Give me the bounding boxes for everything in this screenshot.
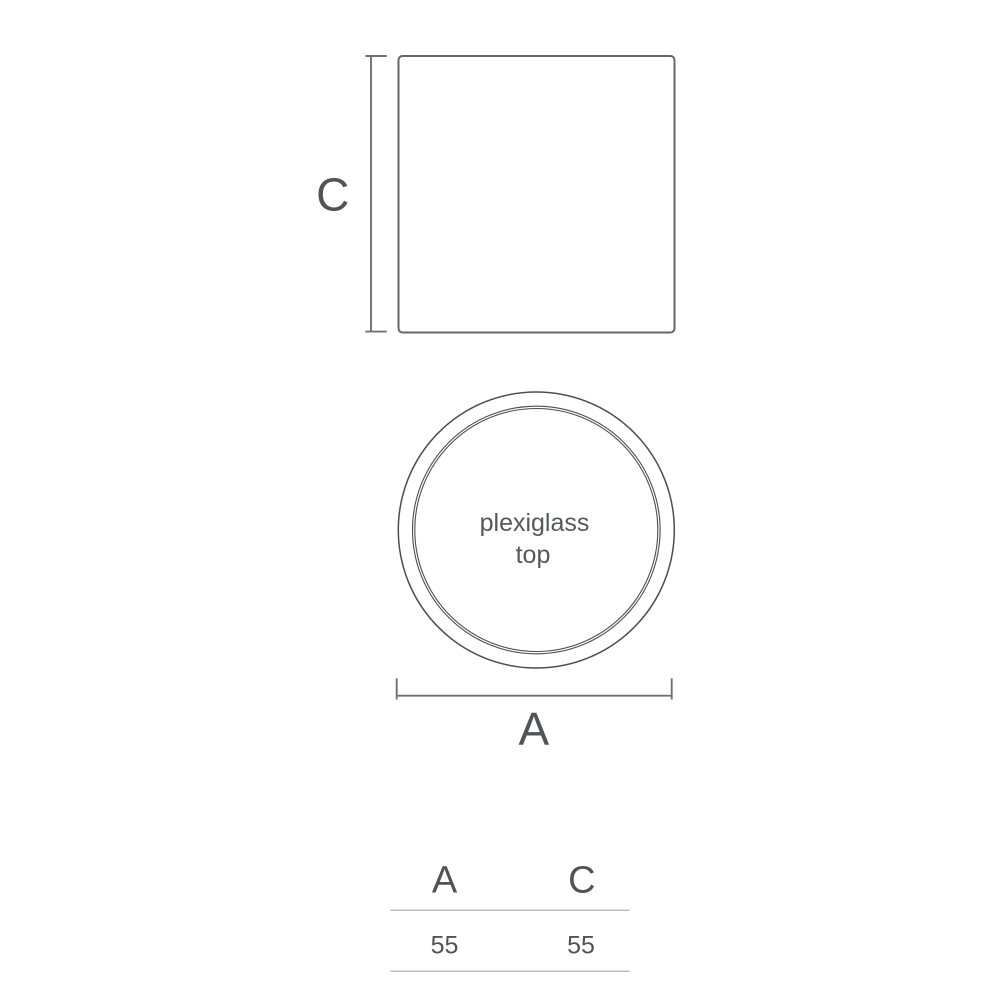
svg-text:A: A	[518, 703, 549, 755]
svg-text:55: 55	[431, 932, 459, 960]
svg-text:top: top	[516, 541, 551, 569]
svg-text:A: A	[432, 859, 458, 901]
svg-text:C: C	[568, 859, 595, 901]
svg-text:C: C	[316, 169, 349, 221]
svg-text:plexiglass: plexiglass	[480, 509, 590, 537]
svg-text:55: 55	[567, 932, 595, 960]
